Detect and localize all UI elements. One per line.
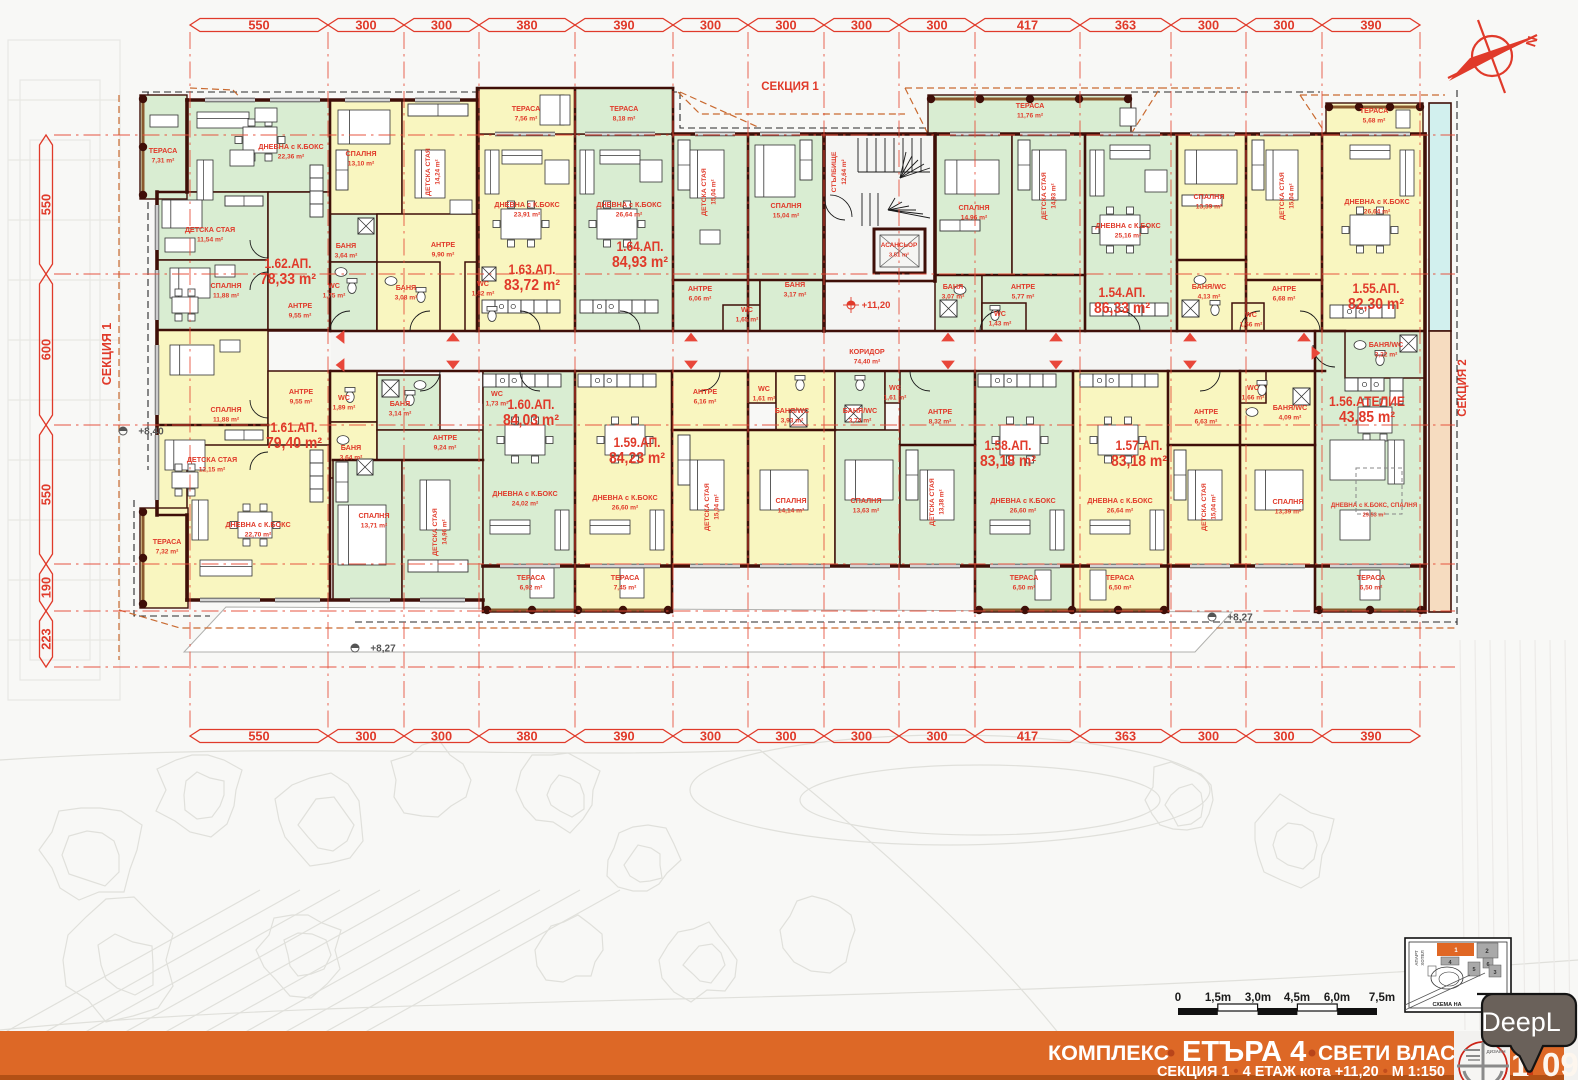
svg-text:390: 390 (613, 18, 634, 33)
svg-text:ДЕТСКА СТАЯ: ДЕТСКА СТАЯ (185, 225, 235, 234)
svg-text:4,5m: 4,5m (1284, 992, 1310, 1004)
svg-text:9,90 m²: 9,90 m² (432, 252, 456, 259)
svg-text:300: 300 (851, 729, 872, 744)
svg-text:14,14 m²: 14,14 m² (778, 508, 805, 515)
svg-text:300: 300 (851, 18, 872, 33)
svg-text:БАНЯ/WC: БАНЯ/WC (843, 406, 877, 415)
svg-text:1,43 m²: 1,43 m² (989, 321, 1013, 328)
svg-text:22,70 m²: 22,70 m² (245, 532, 272, 539)
svg-text:БАНЯ: БАНЯ (341, 443, 361, 452)
svg-text:5,68 m²: 5,68 m² (1363, 118, 1387, 125)
svg-text:6,16 m²: 6,16 m² (694, 399, 718, 406)
svg-text:СПАЛНЯ: СПАЛНЯ (210, 405, 241, 414)
svg-text:7,32 m²: 7,32 m² (156, 549, 180, 556)
svg-text:БАНЯ: БАНЯ (336, 241, 356, 250)
svg-text:15,04 m²: 15,04 m² (711, 179, 718, 204)
svg-text:84,23 m²: 84,23 m² (609, 450, 665, 467)
svg-text:ТЕРАСА: ТЕРАСА (512, 104, 541, 113)
svg-text:3,93 m²: 3,93 m² (781, 418, 805, 425)
svg-text:14,96 m²: 14,96 m² (961, 215, 988, 222)
svg-text:ХОТЕЛ: ХОТЕЛ (1420, 950, 1425, 965)
svg-text:АНТРЕ: АНТРЕ (688, 284, 713, 293)
svg-text:26,60 m²: 26,60 m² (612, 505, 639, 512)
svg-text:АНТРЕ: АНТРЕ (693, 387, 718, 396)
svg-text:23,91 m²: 23,91 m² (514, 212, 541, 219)
svg-text:363: 363 (1115, 18, 1136, 33)
svg-text:1,73 m²: 1,73 m² (486, 401, 510, 408)
svg-text:6,68 m²: 6,68 m² (1273, 296, 1297, 303)
svg-text:ДНЕВНА с К.БОКС: ДНЕВНА с К.БОКС (494, 200, 559, 209)
svg-text:СПАЛНЯ: СПАЛНЯ (850, 496, 881, 505)
svg-text:6,50 m²: 6,50 m² (1109, 585, 1133, 592)
svg-text:1,89 m²: 1,89 m² (333, 405, 357, 412)
svg-text:ТЕРАСА: ТЕРАСА (1016, 101, 1045, 110)
svg-text:11,76 m²: 11,76 m² (1017, 113, 1044, 120)
svg-text:0: 0 (1175, 992, 1181, 1004)
svg-text:ДЕТСКА СТАЯ: ДЕТСКА СТАЯ (1201, 483, 1208, 531)
svg-text:1.55.АП.: 1.55.АП. (1353, 281, 1400, 296)
svg-text:3,14 m²: 3,14 m² (389, 411, 413, 418)
svg-text:3,0m: 3,0m (1245, 992, 1271, 1004)
svg-text:300: 300 (1273, 18, 1294, 33)
svg-text:300: 300 (1273, 729, 1294, 744)
svg-text:ДИЗАЙН: ДИЗАЙН (1487, 1047, 1506, 1054)
svg-text:ДЕТСКА СТАЯ: ДЕТСКА СТАЯ (425, 148, 432, 196)
svg-text:ДНЕВНА с К.БОКС: ДНЕВНА с К.БОКС (492, 489, 557, 498)
svg-text:11,88 m²: 11,88 m² (213, 293, 240, 300)
svg-text:390: 390 (613, 729, 634, 744)
svg-text:6,92 m²: 6,92 m² (520, 585, 544, 592)
svg-text:83,18 m²: 83,18 m² (980, 453, 1036, 470)
svg-text:300: 300 (1198, 729, 1219, 744)
svg-text:+8,27: +8,27 (370, 644, 396, 655)
svg-text:22,36 m²: 22,36 m² (278, 154, 305, 161)
svg-text:БАНЯ: БАНЯ (396, 283, 416, 292)
svg-text:1.61.АП.: 1.61.АП. (271, 420, 318, 435)
svg-text:8,18 m²: 8,18 m² (613, 116, 637, 123)
svg-text:74,40 m²: 74,40 m² (854, 359, 881, 366)
svg-text:3,17 m²: 3,17 m² (784, 292, 808, 299)
svg-text:550: 550 (39, 484, 54, 505)
svg-text:ДЕТСКА СТАЯ: ДЕТСКА СТАЯ (701, 168, 708, 216)
svg-text:СПАЛНЯ: СПАЛНЯ (358, 511, 389, 520)
svg-text:СХЕМА НА: СХЕМА НА (1432, 1002, 1461, 1008)
svg-text:1.60.АП.: 1.60.АП. (508, 397, 555, 412)
svg-text:СЕКЦИЯ 1: СЕКЦИЯ 1 (100, 323, 114, 386)
svg-text:СТЪЛБИЩЕ: СТЪЛБИЩЕ (831, 151, 838, 192)
svg-text:АНТРЕ: АНТРЕ (1194, 407, 1219, 416)
svg-text:12,64 m²: 12,64 m² (841, 159, 848, 184)
svg-text:ТЕРАСА: ТЕРАСА (610, 104, 639, 113)
svg-text:15,04 m²: 15,04 m² (773, 213, 800, 220)
svg-text:WC: WC (328, 281, 340, 290)
svg-text:ДЕТСКА СТАЯ: ДЕТСКА СТАЯ (432, 508, 439, 556)
svg-text:АПАРТ: АПАРТ (1414, 950, 1419, 966)
svg-text:300: 300 (431, 729, 452, 744)
svg-text:1,61 m²: 1,61 m² (884, 395, 908, 402)
svg-text:600: 600 (39, 339, 54, 360)
svg-text:380: 380 (516, 18, 537, 33)
svg-text:550: 550 (248, 729, 269, 744)
svg-text:15,04 m²: 15,04 m² (1289, 183, 1296, 208)
svg-text:1.59.АП.: 1.59.АП. (614, 435, 661, 450)
svg-text:1.54.АП.: 1.54.АП. (1099, 285, 1146, 300)
svg-text:СПАЛНЯ: СПАЛНЯ (1193, 192, 1224, 201)
svg-text:БАНЯ/WC: БАНЯ/WC (1273, 403, 1307, 412)
svg-text:СЕКЦИЯ 1: СЕКЦИЯ 1 (761, 81, 819, 93)
svg-text:1.56.АТЕЛИЕ: 1.56.АТЕЛИЕ (1329, 394, 1405, 409)
svg-text:363: 363 (1115, 729, 1136, 744)
svg-text:09: 09 (1542, 1046, 1578, 1080)
svg-text:13,38 m²: 13,38 m² (939, 489, 946, 514)
svg-text:1,61 m²: 1,61 m² (753, 396, 777, 403)
svg-text:3,74 m²: 3,74 m² (849, 418, 873, 425)
svg-text:6,06 m²: 6,06 m² (689, 296, 713, 303)
svg-text:БАНЯ/WC: БАНЯ/WC (1369, 340, 1403, 349)
svg-text:БАНЯ/WC: БАНЯ/WC (775, 406, 809, 415)
svg-text:13,39 m²: 13,39 m² (1275, 509, 1302, 516)
svg-text:7,31 m²: 7,31 m² (152, 158, 176, 165)
svg-text:300: 300 (926, 729, 947, 744)
svg-text:ТЕРАСА: ТЕРАСА (611, 573, 640, 582)
svg-text:СПАЛНЯ: СПАЛНЯ (958, 203, 989, 212)
svg-text:43,85 m²: 43,85 m² (1339, 409, 1395, 426)
svg-text:1,66 m²: 1,66 m² (1242, 395, 1266, 402)
svg-text:550: 550 (248, 18, 269, 33)
svg-text:1.57.АП.: 1.57.АП. (1116, 438, 1163, 453)
svg-text:WC: WC (477, 279, 489, 288)
svg-text:КОМПЛЕКС: КОМПЛЕКС (1048, 1041, 1169, 1065)
svg-text:3,51 m²: 3,51 m² (889, 252, 909, 259)
svg-text:24,02 m²: 24,02 m² (512, 501, 539, 508)
svg-text:ДЕТСКА СТАЯ: ДЕТСКА СТАЯ (1041, 172, 1048, 220)
svg-text:WC: WC (994, 309, 1006, 318)
svg-text:5,77 m²: 5,77 m² (1012, 294, 1036, 301)
svg-text:1.64.АП.: 1.64.АП. (617, 239, 664, 254)
svg-text:14,96 m²: 14,96 m² (442, 519, 449, 544)
svg-text:380: 380 (516, 729, 537, 744)
svg-text:СЕКЦИЯ 2: СЕКЦИЯ 2 (1457, 359, 1469, 417)
svg-text:СПАЛНЯ: СПАЛНЯ (775, 496, 806, 505)
svg-text:ДНЕВНА с К.БОКС: ДНЕВНА с К.БОКС (596, 200, 661, 209)
svg-text:1,75 m²: 1,75 m² (323, 293, 347, 300)
svg-text:СВЕТИ ВЛАС: СВЕТИ ВЛАС (1318, 1042, 1455, 1065)
svg-text:АНТРЕ: АНТРЕ (288, 301, 313, 310)
svg-text:300: 300 (700, 729, 721, 744)
svg-text:300: 300 (355, 18, 376, 33)
svg-text:WC: WC (491, 389, 503, 398)
svg-text:ДНЕВНА с К.БОКС: ДНЕВНА с К.БОКС (1087, 496, 1152, 505)
svg-text:11,54 m²: 11,54 m² (197, 237, 224, 244)
svg-text:6,0m: 6,0m (1324, 992, 1350, 1004)
svg-text:ДНЕВНА с К.БОКС: ДНЕВНА с К.БОКС (1344, 197, 1409, 206)
svg-text:3,64 m²: 3,64 m² (340, 455, 364, 462)
svg-text:6,50 m²: 6,50 m² (1360, 585, 1384, 592)
svg-text:1,5m: 1,5m (1205, 992, 1231, 1004)
svg-text:БАНЯ: БАНЯ (785, 280, 805, 289)
svg-text:13,71 m²: 13,71 m² (361, 523, 388, 530)
svg-text:300: 300 (926, 18, 947, 33)
svg-text:1,82 m²: 1,82 m² (472, 291, 496, 298)
svg-text:223: 223 (39, 628, 54, 649)
svg-text:ТЕРАСА: ТЕРАСА (1106, 573, 1135, 582)
svg-text:СЕКЦИЯ 1 • 4 ЕТАЖ кота +11,20: СЕКЦИЯ 1 • 4 ЕТАЖ кота +11,20 • М 1:150 (1157, 1064, 1445, 1080)
svg-text:7,5m: 7,5m (1369, 992, 1395, 1004)
svg-text:+11,20: +11,20 (862, 300, 891, 311)
svg-text:300: 300 (431, 18, 452, 33)
svg-text:83,18 m²: 83,18 m² (1111, 453, 1167, 470)
svg-text:550: 550 (39, 194, 54, 215)
svg-text:СПАЛНЯ: СПАЛНЯ (345, 149, 376, 158)
svg-text:ДНЕВНА с К.БОКС: ДНЕВНА с К.БОКС (225, 520, 290, 529)
svg-text:ТЕРАСА: ТЕРАСА (517, 573, 546, 582)
svg-text:7,45 m²: 7,45 m² (614, 585, 638, 592)
svg-text:1.63.АП.: 1.63.АП. (509, 262, 556, 277)
svg-text:СПАЛНЯ: СПАЛНЯ (770, 201, 801, 210)
svg-text:3,22 m²: 3,22 m² (1375, 352, 1399, 359)
svg-text:1,66 m²: 1,66 m² (1240, 322, 1264, 329)
svg-text:АСАНСЬОР: АСАНСЬОР (881, 242, 918, 249)
svg-text:7,56 m²: 7,56 m² (515, 116, 539, 123)
svg-text:ДЕТСКА СТАЯ: ДЕТСКА СТАЯ (187, 455, 237, 464)
svg-text:300: 300 (1198, 18, 1219, 33)
svg-text:190: 190 (39, 577, 54, 598)
svg-text:ТЕРАСА: ТЕРАСА (153, 537, 182, 546)
svg-text:3,07 m²: 3,07 m² (942, 294, 966, 301)
svg-text:11,88 m²: 11,88 m² (213, 417, 240, 424)
svg-text:ДЕТСКА СТАЯ: ДЕТСКА СТАЯ (929, 478, 936, 526)
svg-text:13,10 m²: 13,10 m² (348, 161, 375, 168)
svg-text:26,60 m²: 26,60 m² (1010, 508, 1037, 515)
svg-text:WC: WC (758, 384, 770, 393)
svg-text:82,30 m²: 82,30 m² (1348, 296, 1404, 313)
svg-text:83,72 m²: 83,72 m² (504, 277, 560, 294)
svg-text:9,24 m²: 9,24 m² (434, 445, 458, 452)
svg-text:+8,27: +8,27 (1227, 613, 1253, 624)
svg-text:ТЕРАСА: ТЕРАСА (1010, 573, 1039, 582)
svg-text:15,04 m²: 15,04 m² (1211, 494, 1218, 519)
svg-text:4,09 m²: 4,09 m² (1279, 415, 1303, 422)
svg-text:6,63 m²: 6,63 m² (1195, 419, 1219, 426)
svg-text:300: 300 (355, 729, 376, 744)
svg-text:3: 3 (1493, 970, 1496, 976)
svg-text:ДЕТСКА СТАЯ: ДЕТСКА СТАЯ (704, 483, 711, 531)
svg-text:5: 5 (1472, 967, 1475, 973)
svg-text:БАНЯ/WC: БАНЯ/WC (1192, 282, 1226, 291)
svg-text:3,08 m²: 3,08 m² (395, 295, 419, 302)
svg-text:WC: WC (338, 393, 350, 402)
svg-text:ДНЕВНА с К.БОКС: ДНЕВНА с К.БОКС (592, 493, 657, 502)
svg-text:ТЕРАСА: ТЕРАСА (1360, 106, 1389, 115)
svg-text:АНТРЕ: АНТРЕ (431, 240, 456, 249)
svg-text:1.58.АП.: 1.58.АП. (985, 438, 1032, 453)
svg-text:СПАЛНЯ: СПАЛНЯ (210, 281, 241, 290)
svg-text:3,64 m²: 3,64 m² (335, 253, 359, 260)
svg-text:78,33 m²: 78,33 m² (260, 271, 316, 288)
svg-text:ДЕТСКА СТАЯ: ДЕТСКА СТАЯ (1279, 172, 1286, 220)
svg-text:WC: WC (741, 305, 753, 314)
svg-text:8,32 m²: 8,32 m² (929, 419, 953, 426)
svg-text:ТЕРАСА: ТЕРАСА (149, 146, 178, 155)
svg-text:БАНЯ: БАНЯ (390, 399, 410, 408)
svg-text:БАНЯ: БАНЯ (943, 282, 963, 291)
svg-text:300: 300 (775, 18, 796, 33)
svg-text:АНТРЕ: АНТРЕ (289, 387, 314, 396)
svg-text:12,15 m²: 12,15 m² (199, 467, 226, 474)
svg-text:1,65 m²: 1,65 m² (736, 317, 760, 324)
svg-text:13,63 m²: 13,63 m² (853, 508, 880, 515)
svg-text:1.62.АП.: 1.62.АП. (265, 256, 312, 271)
svg-text:+8,40: +8,40 (138, 427, 164, 438)
svg-text:WC: WC (1247, 383, 1259, 392)
svg-text:WC: WC (1245, 310, 1257, 319)
svg-text:АНТРЕ: АНТРЕ (1272, 284, 1297, 293)
svg-text:ТЕРАСА: ТЕРАСА (1357, 573, 1386, 582)
svg-text:14,93 m²: 14,93 m² (1051, 183, 1058, 208)
svg-text:9,55 m²: 9,55 m² (289, 313, 313, 320)
svg-text:9,55 m²: 9,55 m² (290, 399, 314, 406)
svg-text:АНТРЕ: АНТРЕ (433, 433, 458, 442)
svg-text:СПАЛНЯ: СПАЛНЯ (1272, 497, 1303, 506)
svg-text:25,16 m²: 25,16 m² (1115, 233, 1142, 240)
svg-text:300: 300 (700, 18, 721, 33)
svg-text:86,33 m²: 86,33 m² (1094, 300, 1150, 317)
svg-text:390: 390 (1360, 18, 1381, 33)
svg-text:АНТРЕ: АНТРЕ (928, 407, 953, 416)
svg-text:26,64 m²: 26,64 m² (1107, 508, 1134, 515)
svg-text:КОРИДОР: КОРИДОР (849, 347, 885, 356)
svg-text:АНТРЕ: АНТРЕ (1011, 282, 1036, 291)
svg-text:15,04 m²: 15,04 m² (714, 494, 721, 519)
svg-text:79,40 m²: 79,40 m² (266, 435, 322, 452)
svg-text:417: 417 (1017, 729, 1038, 744)
svg-text:ДНЕВНА с К.БОКС, СПАЛНЯ: ДНЕВНА с К.БОКС, СПАЛНЯ (1331, 502, 1418, 509)
svg-text:300: 300 (775, 729, 796, 744)
svg-text:84,93 m²: 84,93 m² (612, 254, 668, 271)
svg-text:29,53 m²: 29,53 m² (1363, 512, 1386, 519)
svg-text:14,24 m²: 14,24 m² (435, 159, 442, 184)
svg-text:26,64 m²: 26,64 m² (616, 212, 643, 219)
svg-text:6,50 m²: 6,50 m² (1013, 585, 1037, 592)
svg-text:ДНЕВНА с К.БОКС: ДНЕВНА с К.БОКС (258, 142, 323, 151)
svg-text:DeepL: DeepL (1481, 1007, 1561, 1037)
svg-text:417: 417 (1017, 18, 1038, 33)
svg-text:WC: WC (889, 383, 901, 392)
svg-text:84,03 m²: 84,03 m² (503, 412, 559, 429)
svg-text:ДНЕВНА с К.БОКС: ДНЕВНА с К.БОКС (990, 496, 1055, 505)
svg-text:ДНЕВНА с К.БОКС: ДНЕВНА с К.БОКС (1095, 221, 1160, 230)
svg-text:26,64 m²: 26,64 m² (1364, 209, 1391, 216)
svg-text:390: 390 (1360, 729, 1381, 744)
svg-text:4,13 m²: 4,13 m² (1198, 294, 1222, 301)
svg-text:13,39 m²: 13,39 m² (1196, 204, 1223, 211)
